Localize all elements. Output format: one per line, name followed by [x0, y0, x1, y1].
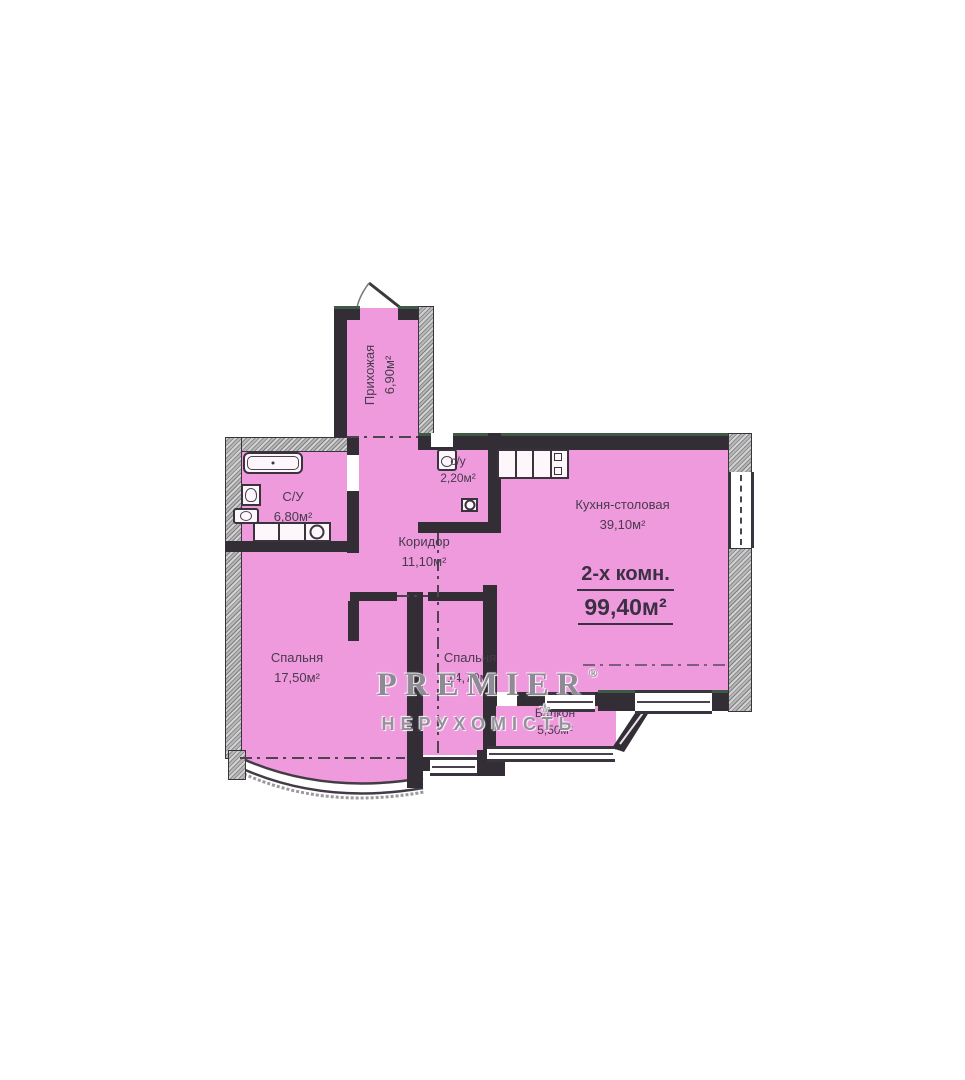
- wall-stub-bedroom-left-pier: [348, 601, 359, 641]
- room-area: 2,20м²: [423, 470, 493, 487]
- wc-sink-icon: [461, 498, 478, 512]
- room-name: Спальня: [238, 648, 356, 668]
- room-name: Кухня-столовая: [540, 495, 705, 515]
- bedroom-left-zone-line: [240, 757, 405, 759]
- watermark-subtitle: НЕРУХОМІСТЬ: [362, 714, 597, 735]
- label-wc: с/у 2,20м²: [423, 453, 493, 487]
- label-bedroom-left: Спальня 17,50м²: [238, 648, 356, 688]
- wc-door-opening: [431, 433, 453, 447]
- wall-left-bottom-corner: [228, 750, 246, 780]
- bedroom-middle-window: [430, 757, 477, 776]
- registered-mark: ®: [588, 666, 597, 680]
- bathroom-door-opening: [347, 455, 359, 491]
- wall-hallway-right-exterior: [418, 306, 434, 439]
- watermark-subtitle-text: НЕРУХОМІСТЬ: [382, 714, 578, 734]
- hallway-threshold-line: [347, 436, 418, 438]
- bedroom-doorway-line: [397, 595, 428, 597]
- room-name: Прихожая: [360, 330, 380, 420]
- room-area: 11,10м²: [365, 552, 483, 572]
- room-name: с/у: [423, 453, 493, 470]
- apartment-total-area: 99,40м²: [578, 594, 672, 625]
- floor-plan-canvas: Прихожая 6,90м² С/У 6,80м² с/у 2,20м² Ко…: [0, 0, 965, 1080]
- room-name: Коридор: [365, 532, 483, 552]
- room-area: 6,80м²: [253, 507, 333, 527]
- room-area: 6,90м²: [380, 330, 400, 420]
- wall-bathroom-top-exterior: [225, 437, 351, 452]
- balcony-bottom-glazing: [487, 746, 615, 762]
- wall-bedroom-middle-bottom-bit: [423, 757, 430, 771]
- wall-stub-bedroom-left-top: [350, 592, 397, 601]
- watermark-brand-text: PREMIER: [377, 667, 589, 703]
- wall-hallway-left: [334, 306, 347, 437]
- kitchen-right-window: [728, 472, 754, 548]
- wall-hallway-top-left: [334, 306, 360, 320]
- kitchen-bottom-window: [635, 690, 712, 714]
- watermark-brand: PREMIER®: [362, 666, 612, 704]
- wall-right-exterior-bottom: [728, 548, 752, 712]
- wall-left-exterior: [225, 437, 242, 759]
- wall-bathroom-bottom: [225, 541, 359, 552]
- wall-right-exterior-top: [728, 433, 752, 474]
- label-kitchen-dining: Кухня-столовая 39,10м²: [540, 495, 705, 535]
- room-name: С/У: [253, 487, 333, 507]
- apartment-summary: 2-х комн. 99,40м²: [553, 563, 698, 625]
- bathtub-icon: [243, 452, 303, 474]
- kitchen-counter-icon: [497, 449, 569, 479]
- label-hallway: Прихожая 6,90м²: [360, 330, 406, 420]
- room-area: 39,10м²: [540, 515, 705, 535]
- room-area: 17,50м²: [238, 668, 356, 688]
- wall-main-top: [418, 433, 750, 450]
- label-corridor: Коридор 11,10м²: [365, 532, 483, 572]
- apartment-type: 2-х комн.: [577, 563, 674, 591]
- label-bathroom: С/У 6,80м²: [253, 487, 333, 527]
